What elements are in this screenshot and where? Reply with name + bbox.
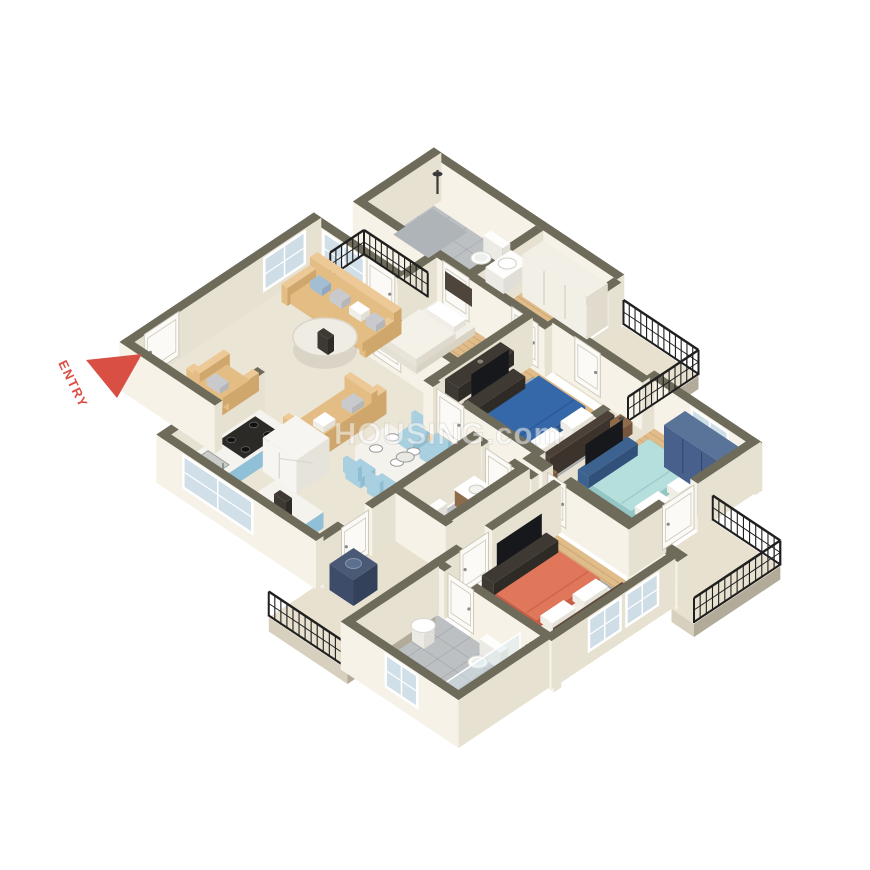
floor-plan-image: ENTRY HOUSING.com [0, 0, 870, 870]
watermark-text: HOUSING.com [334, 416, 562, 451]
floor-plan-3d: ENTRY HOUSING.com [0, 0, 870, 870]
entry-label: ENTRY [55, 358, 91, 410]
